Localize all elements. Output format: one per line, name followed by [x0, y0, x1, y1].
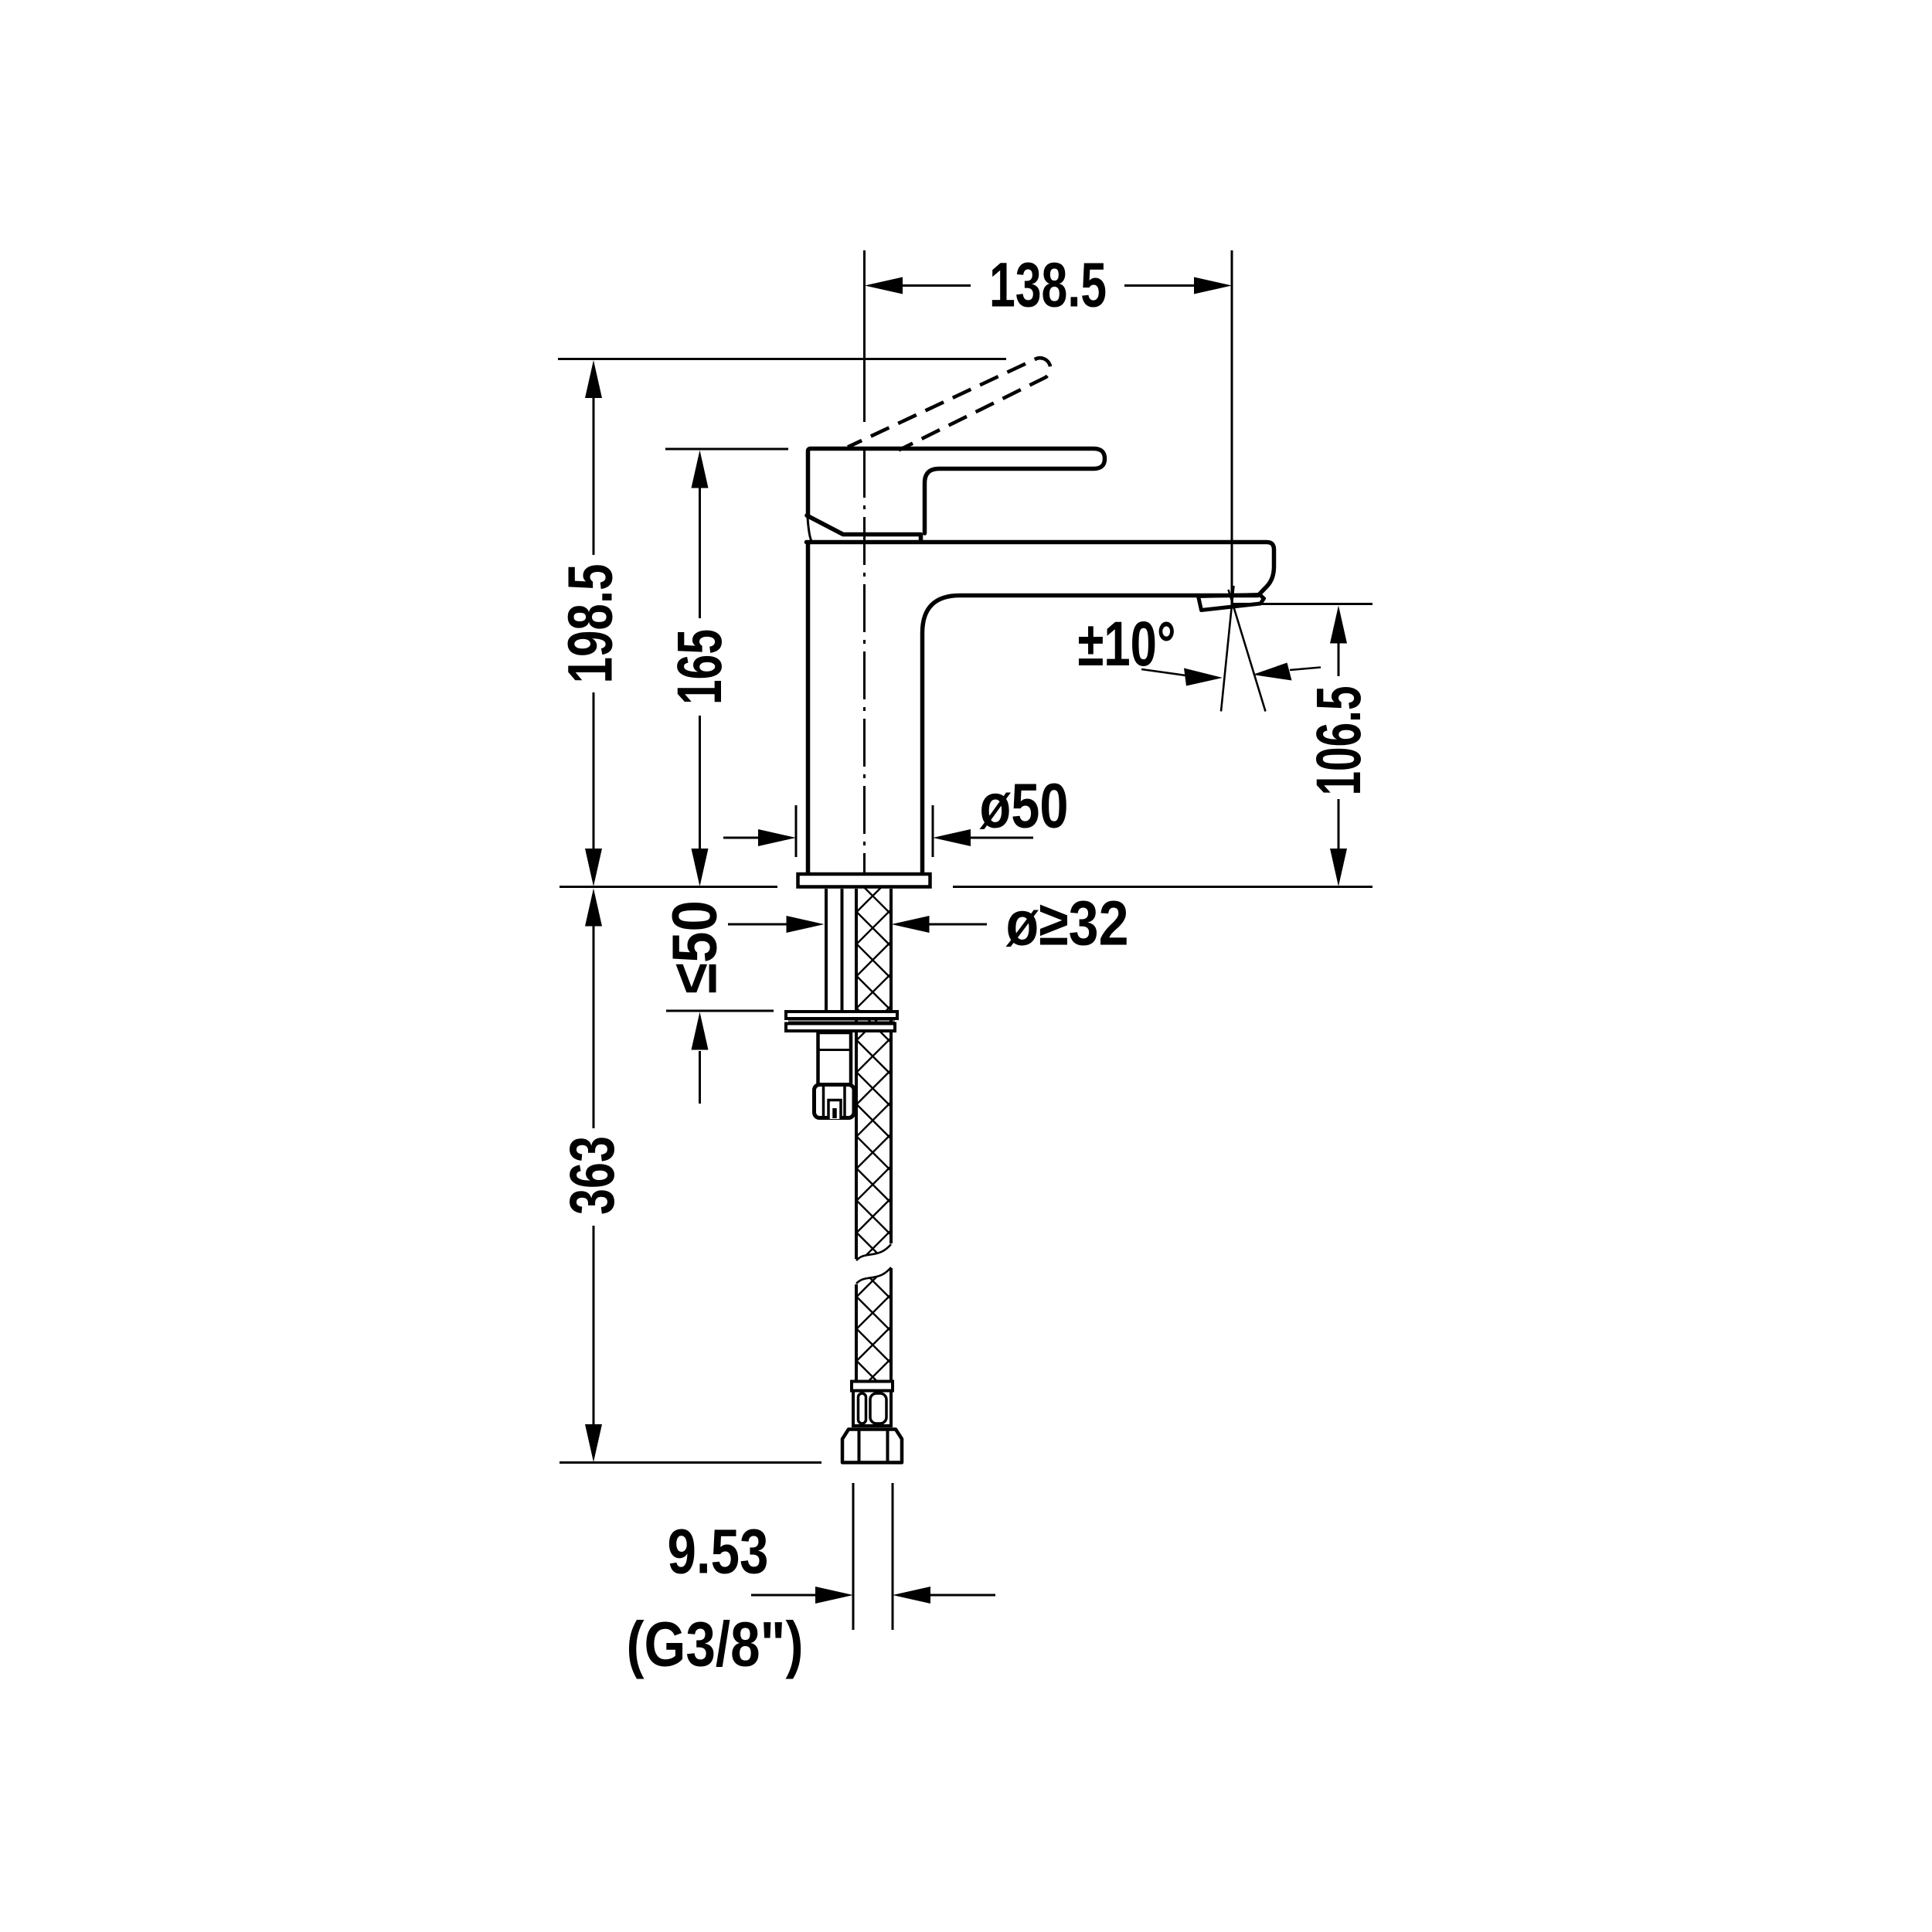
- svg-text:±10°: ±10°: [1078, 609, 1176, 679]
- svg-text:106.5: 106.5: [1304, 686, 1374, 796]
- svg-text:≤50: ≤50: [660, 900, 730, 994]
- svg-text:ø50: ø50: [980, 771, 1069, 842]
- svg-text:363: 363: [557, 1136, 628, 1215]
- svg-text:198.5: 198.5: [556, 564, 626, 684]
- svg-text:165: 165: [665, 629, 735, 705]
- svg-text:ø≥32: ø≥32: [1006, 889, 1129, 959]
- svg-text:9.53: 9.53: [668, 1517, 769, 1587]
- svg-text:(G3/8"): (G3/8"): [627, 1610, 804, 1680]
- svg-text:138.5: 138.5: [989, 250, 1107, 321]
